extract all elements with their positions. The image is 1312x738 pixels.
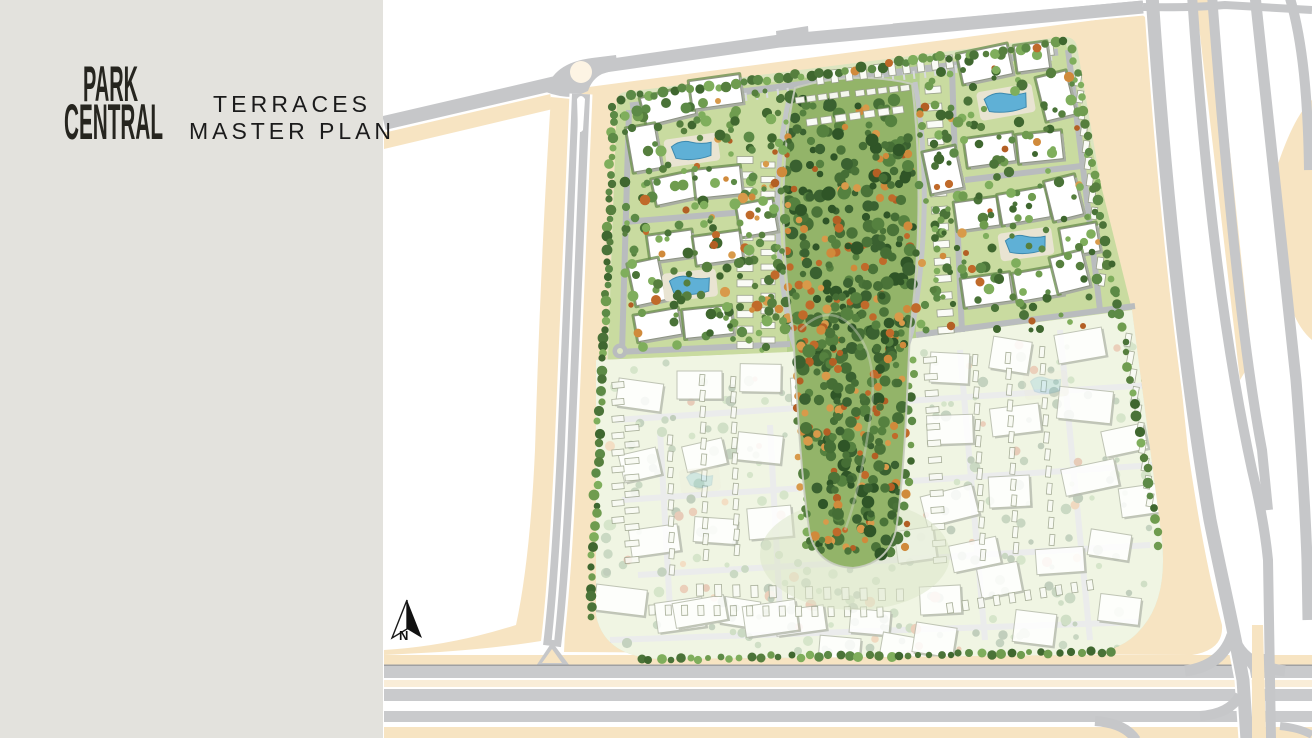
svg-text:CENTRAL: CENTRAL: [64, 94, 163, 150]
svg-text:N: N: [399, 628, 408, 643]
svg-text:MASTER PLAN: MASTER PLAN: [189, 118, 391, 144]
